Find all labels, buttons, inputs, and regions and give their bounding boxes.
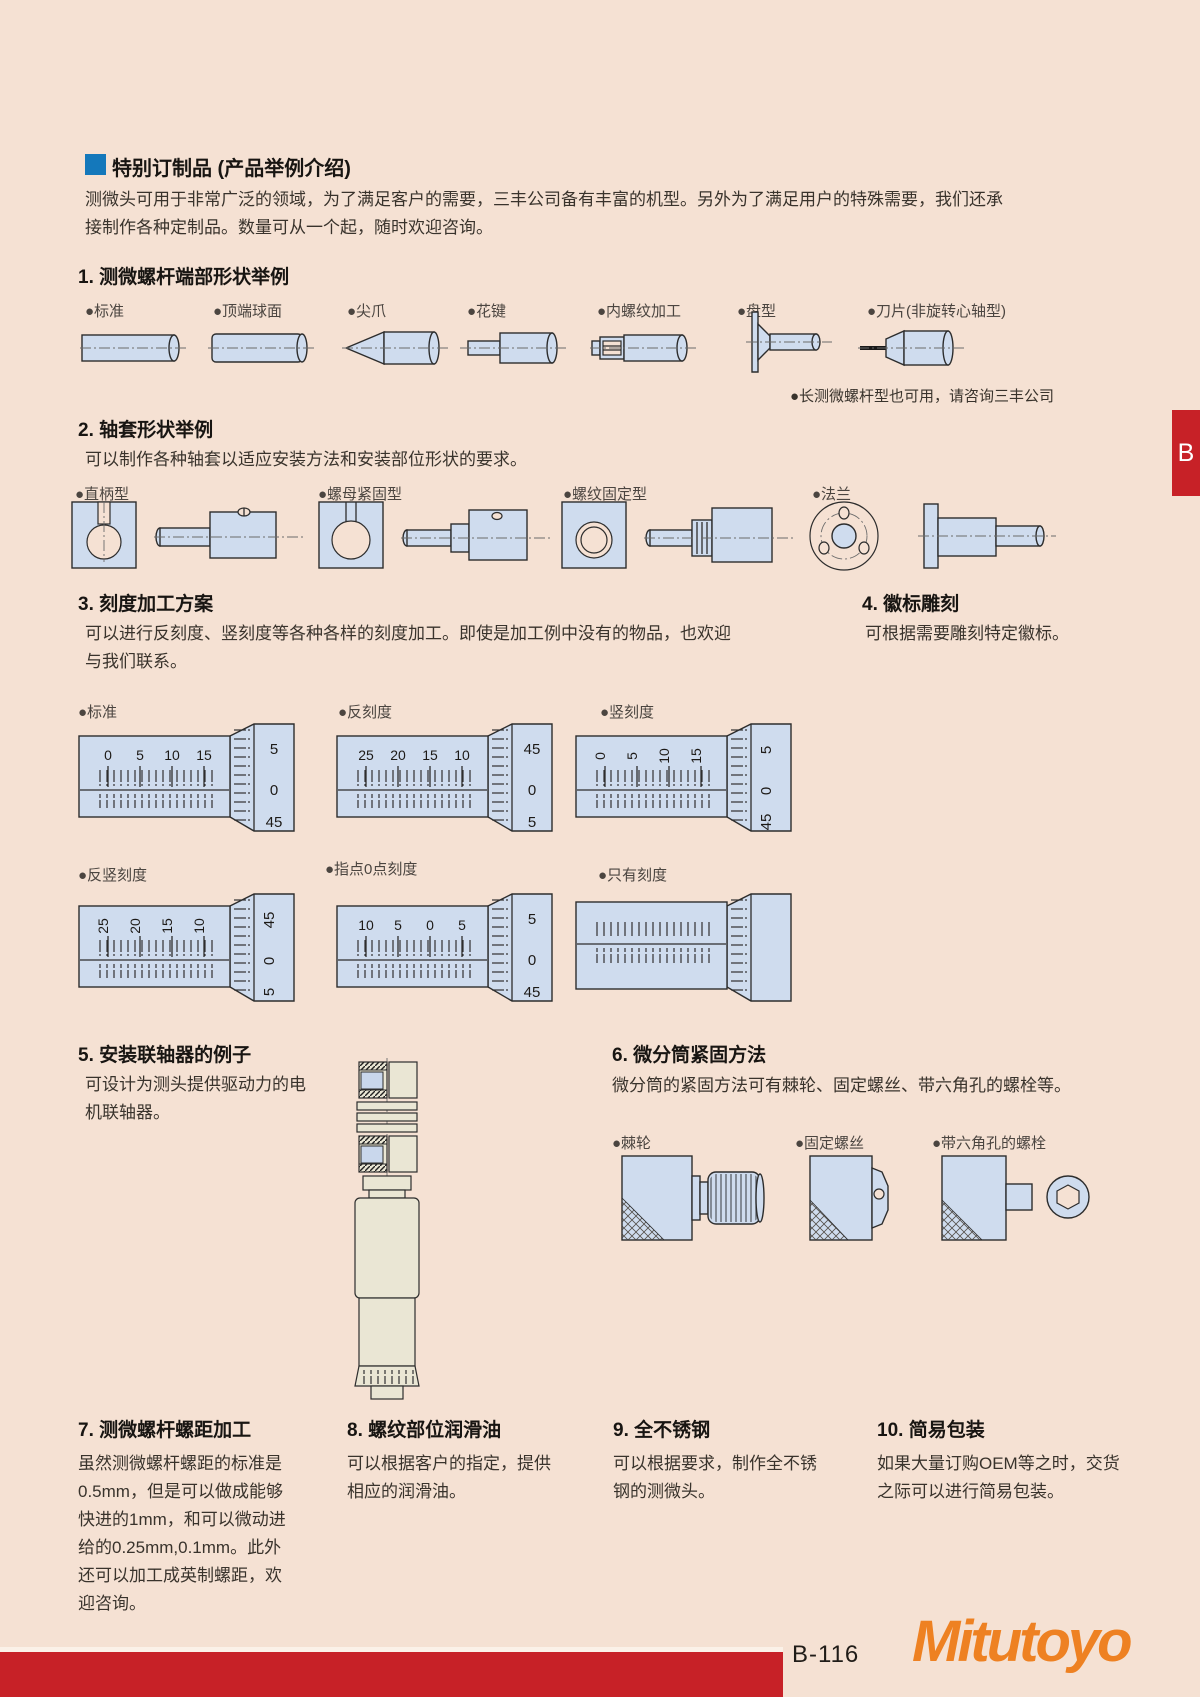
s1-label-internal-thread: ●内螺纹加工 [597, 300, 681, 321]
section9-title: 9. 全不锈钢 [613, 1415, 710, 1442]
section-index-tab: B [1172, 410, 1200, 496]
spindle-standard-drawing [80, 322, 190, 374]
s1-long-spindle-note: ●长测微螺杆型也可用，请咨询三丰公司 [790, 385, 1054, 406]
mic0-thimble-num: 0 [270, 782, 278, 799]
mic4-sleeve-num: 5 [394, 917, 402, 933]
mic2-sleeve-num: 10 [656, 748, 672, 764]
mic3-thimble-num: 0 [261, 957, 278, 965]
s7-line: 快进的1mm，和可以微动进 [78, 1506, 286, 1534]
mic2-thimble-num: 45 [758, 814, 775, 831]
intro-paragraph: 测微头可用于非常广泛的领域，为了满足客户的需要，三丰公司备有丰富的机型。另外为了… [85, 186, 1003, 242]
s8-line: 相应的润滑油。 [347, 1478, 551, 1506]
section6-title: 6. 微分筒紧固方法 [612, 1040, 766, 1067]
section8-body: 可以根据客户的指定，提供 相应的润滑油。 [347, 1450, 551, 1506]
mic2-thimble-num: 5 [758, 746, 775, 754]
s7-line: 给的0.25mm,0.1mm。此外 [78, 1534, 286, 1562]
micrometer-vertical-drawing: 0 5 10 15 5 0 45 [575, 720, 793, 835]
spindle-ball-end-drawing [208, 322, 318, 374]
spindle-disc-drawing [726, 310, 836, 374]
section4-desc: 可根据需要雕刻特定徽标。 [865, 620, 1069, 648]
section1-title: 1. 测微螺杆端部形状举例 [78, 262, 289, 289]
s1-label-spline: ●花键 [467, 300, 506, 321]
section2-title: 2. 轴套形状举例 [78, 415, 213, 442]
brand-logo: Mitutoyo [912, 1608, 1130, 1675]
micrometer-standard-drawing: 0 5 10 15 5 0 45 [78, 720, 296, 835]
mic3-sleeve-num: 15 [159, 918, 175, 934]
mic3-sleeve-num: 10 [191, 918, 207, 934]
micrometer-reverse-drawing: 25 20 15 10 45 0 5 [336, 720, 554, 835]
s1-label-ball-end: ●顶端球面 [213, 300, 282, 321]
s9-line: 钢的测微头。 [613, 1478, 817, 1506]
stem-nut-clamp-drawing [315, 498, 555, 573]
section7-title: 7. 测微螺杆螺距加工 [78, 1415, 251, 1442]
section-marker-square [85, 154, 106, 175]
micrometer-pointed-zero-drawing: 10 5 0 5 5 0 45 [336, 890, 554, 1005]
s7-line: 虽然测微螺杆螺距的标准是 [78, 1450, 286, 1478]
mic4-thimble-num: 5 [528, 911, 536, 928]
stem-flange-drawing [800, 498, 1060, 573]
mic4-sleeve-num: 10 [358, 917, 374, 933]
s3-label-reverse-vertical: ●反竖刻度 [78, 864, 147, 885]
section4-title: 4. 徽标雕刻 [862, 589, 959, 616]
section5-desc: 可设计为测头提供驱动力的电 机联轴器。 [85, 1071, 306, 1127]
spindle-blade-drawing [858, 322, 968, 374]
mic3-thimble-num: 45 [261, 912, 278, 929]
set-screw-drawing [808, 1152, 898, 1244]
spindle-internal-thread-drawing [590, 322, 700, 374]
s3-label-graduations-only: ●只有刻度 [598, 864, 667, 885]
micrometer-reverse-vertical-drawing: 25 20 15 10 45 0 5 [78, 890, 296, 1005]
s7-line: 迎咨询。 [78, 1590, 286, 1618]
mic1-sleeve-num: 25 [358, 747, 374, 763]
mic1-sleeve-num: 15 [422, 747, 438, 763]
s8-line: 可以根据客户的指定，提供 [347, 1450, 551, 1478]
section9-body: 可以根据要求，制作全不锈 钢的测微头。 [613, 1450, 817, 1506]
hex-socket-bolt-drawing [940, 1152, 1095, 1244]
section3-title: 3. 刻度加工方案 [78, 589, 213, 616]
mic4-thimble-num: 0 [528, 952, 536, 969]
mic1-sleeve-num: 20 [390, 747, 406, 763]
footer-red-bar [0, 1652, 783, 1697]
s7-line: 0.5mm，但是可以做成能够 [78, 1478, 286, 1506]
stem-thread-mount-drawing [558, 498, 798, 573]
s3-label-reverse: ●反刻度 [338, 701, 392, 722]
mic2-sleeve-num: 0 [592, 752, 608, 760]
mic0-thimble-num: 5 [270, 741, 278, 758]
mic0-sleeve-num: 10 [164, 747, 180, 763]
section2-desc: 可以制作各种轴套以适应安装方法和安装部位形状的要求。 [85, 446, 527, 474]
mic3-thimble-num: 5 [261, 988, 278, 996]
mic2-sleeve-num: 5 [624, 752, 640, 760]
mic1-thimble-num: 0 [528, 782, 536, 799]
mic3-sleeve-num: 25 [95, 918, 111, 934]
s3-desc-line1: 可以进行反刻度、竖刻度等各种各样的刻度加工。即使是加工例中没有的物品，也欢迎 [85, 620, 731, 648]
section7-body: 虽然测微螺杆螺距的标准是 0.5mm，但是可以做成能够 快进的1mm，和可以微动… [78, 1450, 286, 1618]
s5-desc-line2: 机联轴器。 [85, 1099, 306, 1127]
mic0-sleeve-num: 5 [136, 747, 144, 763]
s1-label-blade: ●刀片(非旋转心轴型) [867, 300, 1006, 321]
stem-plain-drawing [68, 498, 308, 573]
s3-label-vertical: ●竖刻度 [600, 701, 654, 722]
mic0-sleeve-num: 0 [104, 747, 112, 763]
s7-line: 还可以加工成英制螺距，欢 [78, 1562, 286, 1590]
intro-line-2: 接制作各种定制品。数量可从一个起，随时欢迎咨询。 [85, 214, 1003, 242]
section3-desc: 可以进行反刻度、竖刻度等各种各样的刻度加工。即使是加工例中没有的物品，也欢迎 与… [85, 620, 731, 676]
section5-title: 5. 安装联轴器的例子 [78, 1040, 251, 1067]
s6-label-set-screw: ●固定螺丝 [795, 1132, 864, 1153]
section6-desc: 微分筒的紧固方法可有棘轮、固定螺丝、带六角孔的螺栓等。 [612, 1072, 1071, 1100]
s6-label-ratchet: ●棘轮 [612, 1132, 651, 1153]
s10-line: 如果大量订购OEM等之时，交货 [877, 1450, 1120, 1478]
s10-line: 之际可以进行简易包装。 [877, 1478, 1120, 1506]
s3-label-pointed-zero: ●指点0点刻度 [325, 858, 417, 879]
section10-body: 如果大量订购OEM等之时，交货 之际可以进行简易包装。 [877, 1450, 1120, 1506]
mic1-thimble-num: 45 [524, 741, 541, 758]
s3-label-standard: ●标准 [78, 701, 117, 722]
s9-line: 可以根据要求，制作全不锈 [613, 1450, 817, 1478]
intro-line-1: 测微头可用于非常广泛的领域，为了满足客户的需要，三丰公司备有丰富的机型。另外为了… [85, 186, 1003, 214]
s3-desc-line2: 与我们联系。 [85, 648, 731, 676]
mic4-sleeve-num: 0 [426, 917, 434, 933]
mic4-thimble-num: 45 [524, 984, 541, 1001]
mic1-thimble-num: 5 [528, 814, 536, 831]
s6-label-hex-socket-bolt: ●带六角孔的螺栓 [932, 1132, 1046, 1153]
spindle-spline-drawing [460, 322, 570, 374]
mic2-thimble-num: 0 [758, 787, 775, 795]
mic1-sleeve-num: 10 [454, 747, 470, 763]
mic4-sleeve-num: 5 [458, 917, 466, 933]
mic2-sleeve-num: 15 [688, 748, 704, 764]
s1-label-point: ●尖爪 [347, 300, 386, 321]
mic0-thimble-num: 45 [266, 814, 283, 831]
page-code: B-116 [792, 1641, 859, 1669]
mic3-sleeve-num: 20 [127, 918, 143, 934]
s5-desc-line1: 可设计为测头提供驱动力的电 [85, 1071, 306, 1099]
spindle-point-drawing [342, 322, 452, 374]
s1-label-standard: ●标准 [85, 300, 124, 321]
micrometer-graduations-only-drawing [575, 890, 793, 1005]
motor-coupling-drawing [335, 1056, 440, 1401]
ratchet-drawing [620, 1152, 770, 1244]
page-title: 特别订制品 (产品举例介绍) [112, 152, 351, 181]
section10-title: 10. 简易包装 [877, 1415, 985, 1442]
section8-title: 8. 螺纹部位润滑油 [347, 1415, 501, 1442]
mic0-sleeve-num: 15 [196, 747, 212, 763]
catalog-page: 特别订制品 (产品举例介绍) 测微头可用于非常广泛的领域，为了满足客户的需要，三… [0, 0, 1200, 1697]
